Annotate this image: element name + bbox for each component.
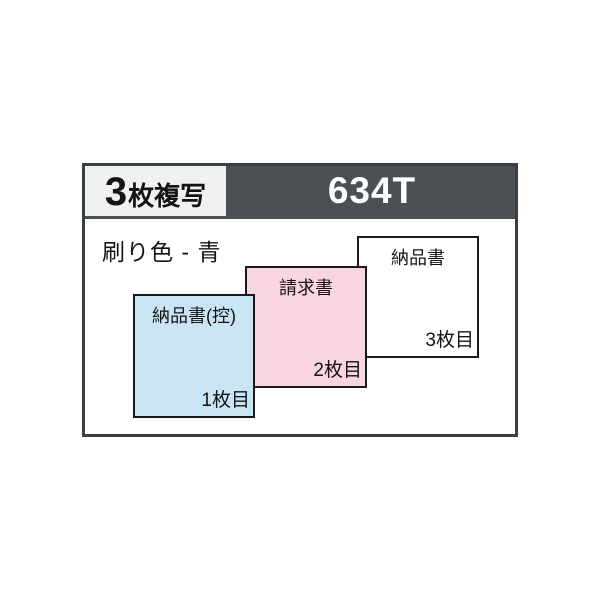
- sheet-3-number: 3枚目: [359, 325, 477, 356]
- product-spec-figure: 3 枚複写 634T 刷り色 - 青 納品書 3枚目 請求書 2枚目 納品書(控…: [82, 163, 518, 437]
- copies-label: 枚複写: [128, 183, 206, 209]
- print-color-label: 刷り色 - 青: [102, 233, 221, 267]
- model-number: 634T: [229, 166, 515, 219]
- sheet-2-number: 2枚目: [247, 355, 365, 386]
- figure-header: 3 枚複写 634T: [85, 166, 515, 219]
- sheet-1-delivery-note-copy: 納品書(控) 1枚目: [133, 294, 255, 418]
- sheet-3-title: 納品書: [359, 238, 477, 270]
- copies-count: 3: [105, 172, 127, 212]
- sheet-2-invoice: 請求書 2枚目: [245, 266, 367, 388]
- figure-body: 刷り色 - 青 納品書 3枚目 請求書 2枚目 納品書(控) 1枚目: [85, 219, 515, 434]
- sheet-3-delivery-note: 納品書 3枚目: [357, 236, 479, 358]
- sheet-1-title: 納品書(控): [135, 296, 253, 328]
- copies-badge: 3 枚複写: [85, 166, 229, 219]
- sheet-2-title: 請求書: [247, 268, 365, 300]
- sheet-1-number: 1枚目: [135, 385, 253, 416]
